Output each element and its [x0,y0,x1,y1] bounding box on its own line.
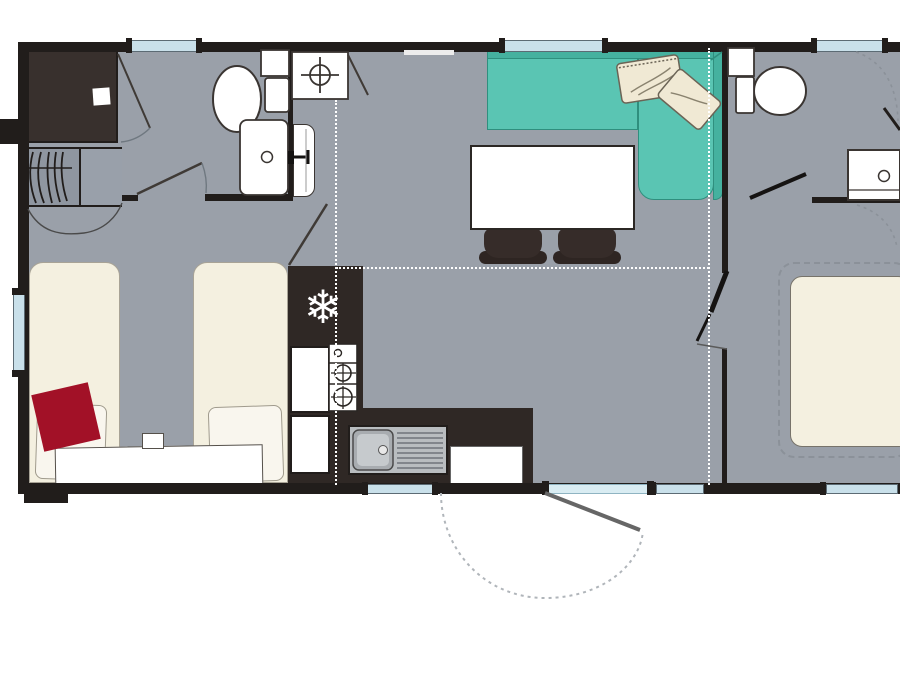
window-cap [12,370,26,377]
exterior-step [24,493,68,503]
window-cap [811,38,817,53]
chair-right [558,228,616,258]
wall-right-bathroom [812,197,900,203]
window-cap [126,38,132,53]
wall-notch [404,50,454,55]
window-cap [362,482,368,495]
entrance-door-threshold [548,484,648,494]
module-joint-line-1 [335,100,337,485]
window-cap [196,38,202,53]
wall-bedroom-stub [122,195,138,201]
double-bed-mattress [790,276,900,447]
wall-bathroom-bottom [205,194,293,201]
night-stand [142,433,164,449]
shower-tray-icon [92,87,110,105]
entrance-door-arc [441,493,643,598]
wall-left [18,42,29,493]
kitchen-cabinet-upper [290,346,330,413]
window-cap [12,288,26,295]
wall-bathroom-vertical [288,52,293,198]
window-cap [650,482,656,495]
window-top-2 [504,40,603,52]
exterior-tab [0,119,18,144]
window-cap [820,482,826,495]
wardrobe [20,147,122,207]
window-bottom-1 [367,484,433,494]
window-top-1 [131,40,197,52]
door-post-left [542,481,549,495]
window-bottom-3 [826,484,898,494]
module-joint-line-3 [336,267,709,269]
window-top-3 [816,40,883,52]
wall-right-lower [722,348,727,483]
sofa-seat-vertical [638,58,714,200]
sofa-seat-horizontal [487,58,638,130]
window-cap [499,38,505,53]
kitchen-cabinet-lower [290,415,330,474]
dining-table [470,145,635,230]
window-cap [432,482,438,495]
shower-room [29,52,118,143]
window-cap [882,38,888,53]
window-bottom-2 [656,484,704,494]
wall-right-upper [722,52,728,273]
chair-left [484,228,542,258]
window-left [13,294,25,371]
window-cap [602,38,608,53]
wall-bottom [18,483,900,494]
bathroom-shelf-panel [293,124,315,197]
entrance-door-leaf [545,493,640,530]
floor-plan: ❄ [0,0,900,675]
fridge-snowflake-icon: ❄ [299,283,347,331]
kitchen-appliance [450,446,523,487]
wardrobe-shelf [79,149,122,205]
